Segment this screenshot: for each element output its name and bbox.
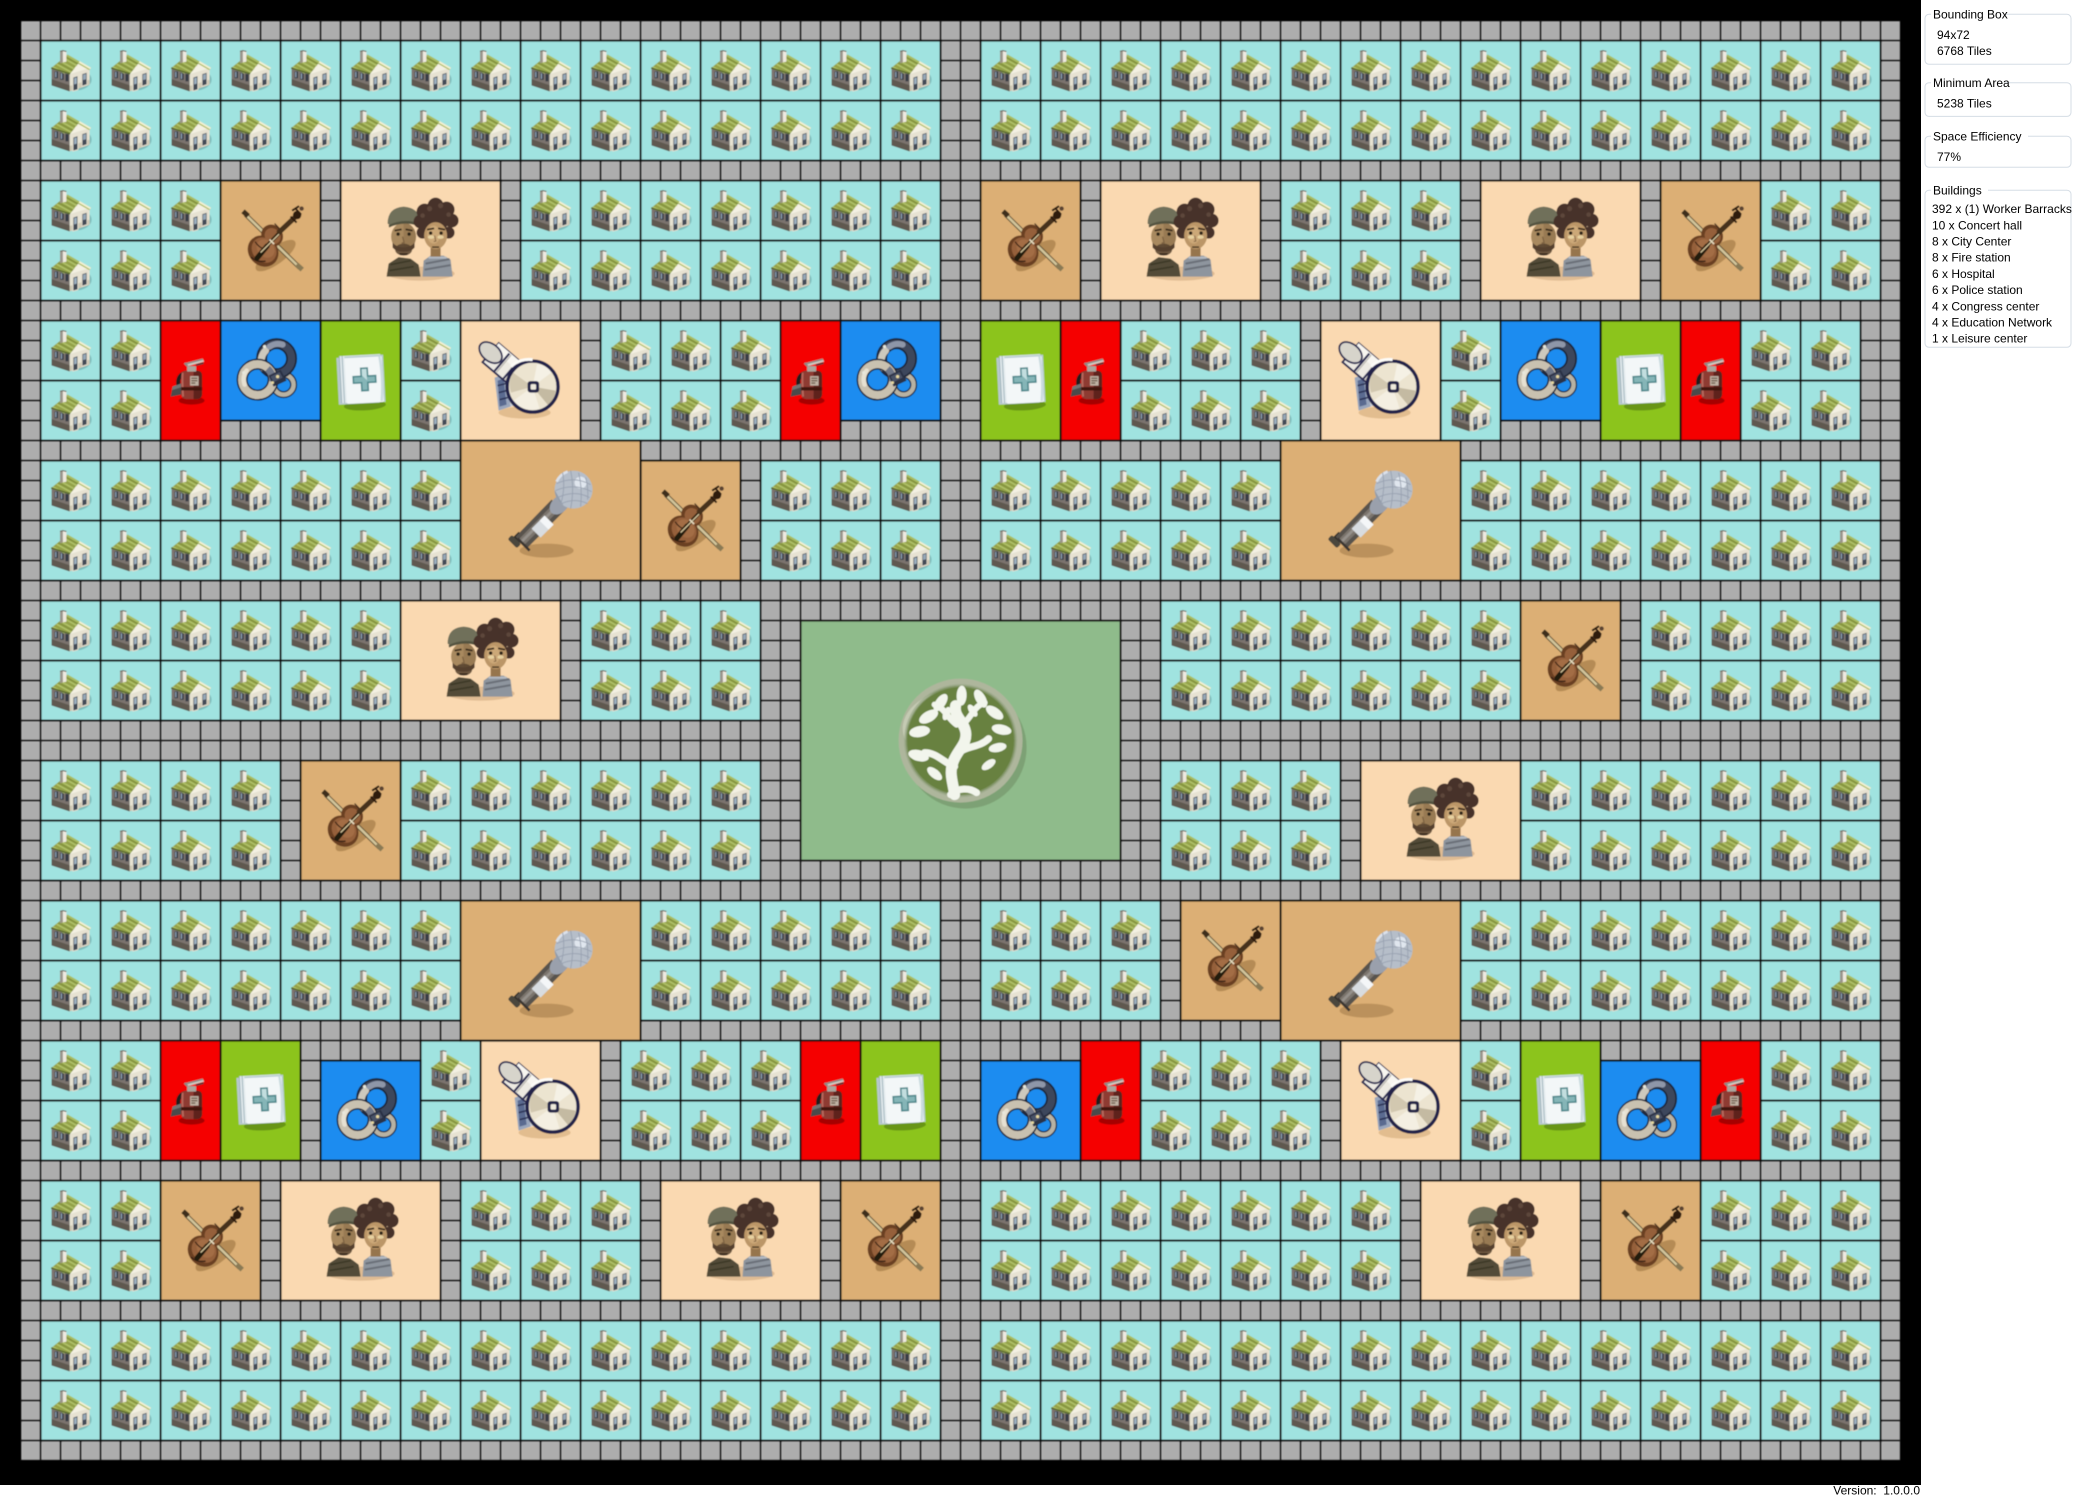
svg-text:6 x Police station: 6 x Police station	[1932, 283, 2023, 297]
svg-text:77%: 77%	[1937, 150, 1961, 164]
svg-text:4 x Congress center: 4 x Congress center	[1932, 299, 2039, 313]
svg-text:4 x Education Network: 4 x Education Network	[1932, 316, 2053, 330]
svg-text:1 x Leisure center: 1 x Leisure center	[1932, 332, 2027, 346]
svg-text:10 x Concert hall: 10 x Concert hall	[1932, 218, 2022, 232]
svg-text:Bounding Box: Bounding Box	[1933, 8, 2008, 22]
svg-text:8 x City Center: 8 x City Center	[1932, 235, 2011, 249]
svg-text:8 x Fire station: 8 x Fire station	[1932, 251, 2011, 265]
svg-text:5238 Tiles: 5238 Tiles	[1937, 96, 1992, 110]
svg-text:Buildings: Buildings	[1933, 184, 1982, 198]
svg-text:Minimum Area: Minimum Area	[1933, 76, 2010, 90]
svg-text:392 x (1) Worker Barracks: 392 x (1) Worker Barracks	[1932, 202, 2072, 216]
svg-text:6 x Hospital: 6 x Hospital	[1932, 267, 1995, 281]
svg-text:Space Efficiency: Space Efficiency	[1933, 130, 2022, 144]
svg-text:Version: 1.0.0.0: Version: 1.0.0.0	[1833, 1484, 1920, 1496]
svg-text:6768 Tiles: 6768 Tiles	[1937, 44, 1992, 58]
svg-text:94x72: 94x72	[1937, 28, 1970, 42]
